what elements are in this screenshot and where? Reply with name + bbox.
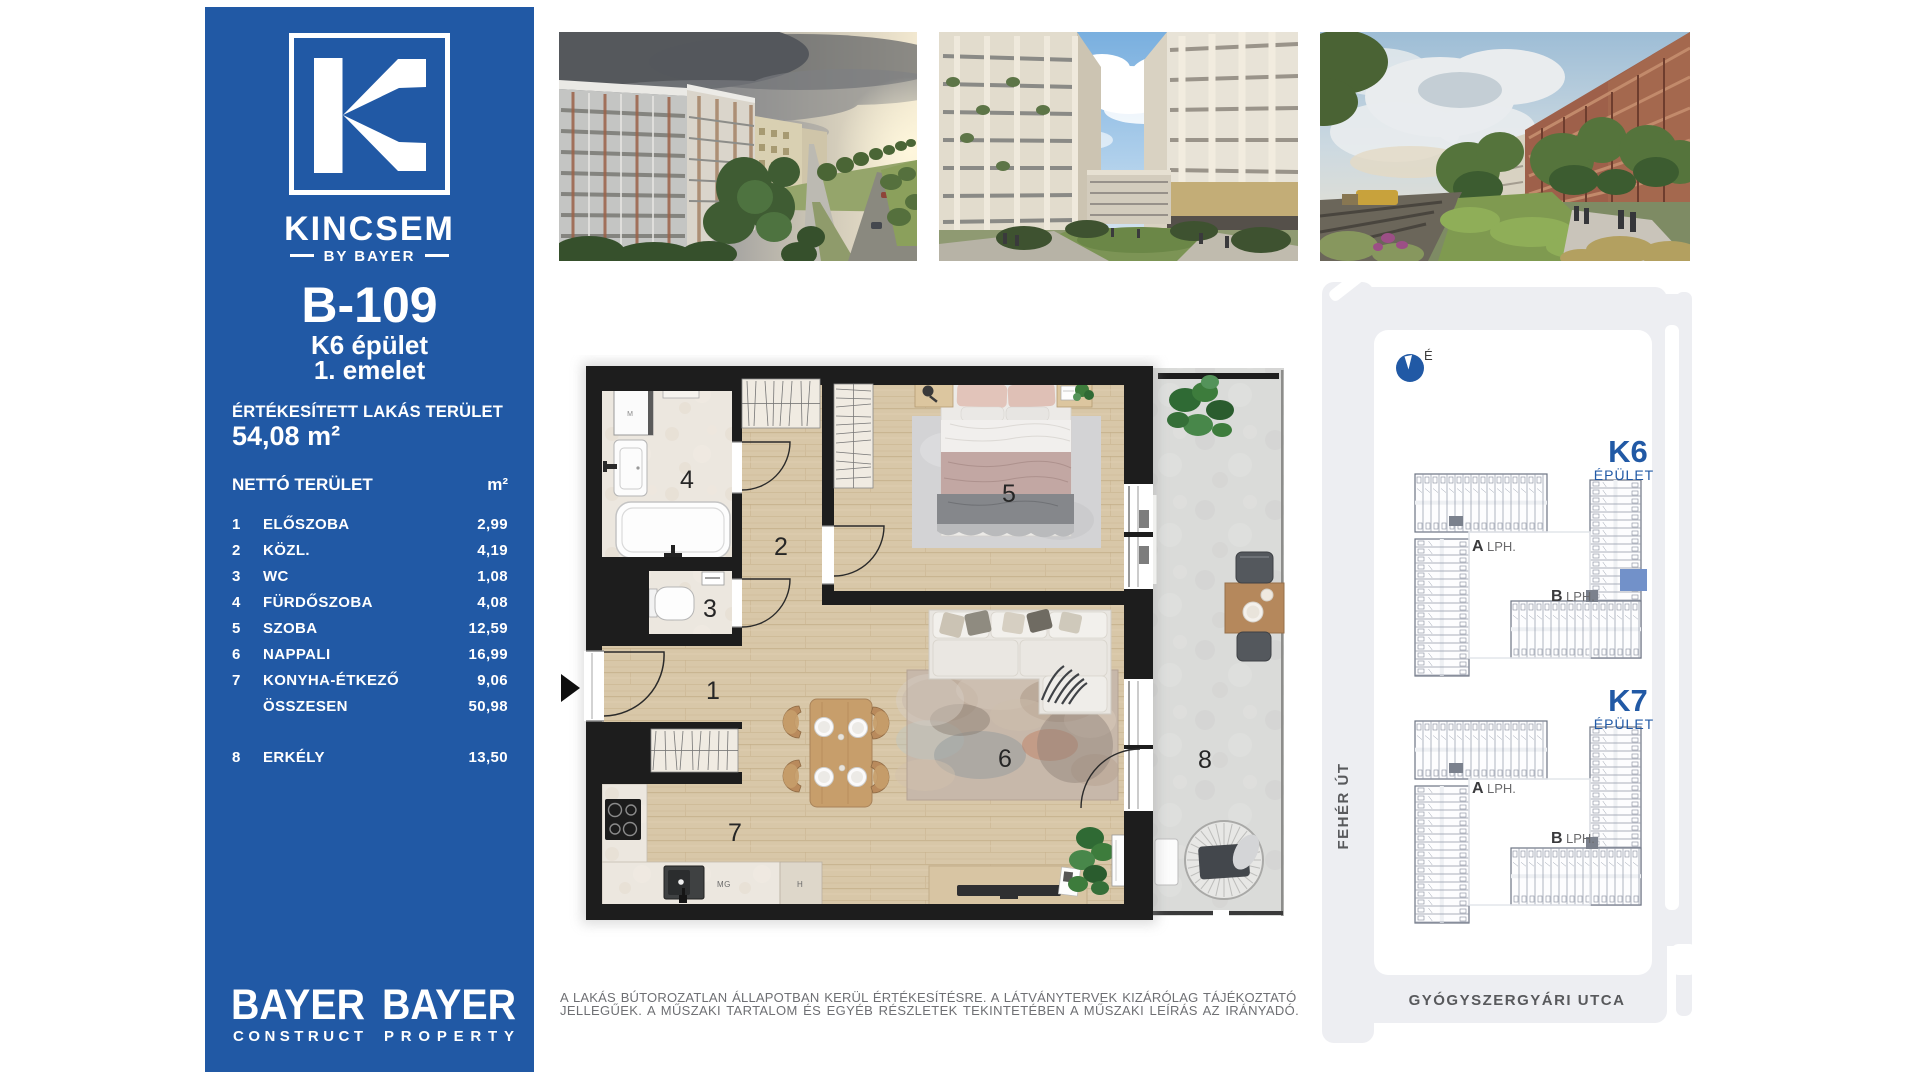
svg-text:K6: K6 xyxy=(1608,434,1648,469)
svg-text:LPH.: LPH. xyxy=(1566,589,1595,604)
svg-text:GYÓGYSZERGYÁRI UTCA: GYÓGYSZERGYÁRI UTCA xyxy=(1409,991,1626,1009)
svg-text:BAYER: BAYER xyxy=(231,982,365,1028)
svg-text:1: 1 xyxy=(706,677,720,705)
svg-text:É: É xyxy=(1424,348,1433,363)
svg-text:ÉPÜLET: ÉPÜLET xyxy=(1594,466,1654,483)
svg-text:LPH.: LPH. xyxy=(1487,781,1516,796)
svg-text:FEHÉR ÚT: FEHÉR ÚT xyxy=(1334,763,1352,850)
svg-text:MG: MG xyxy=(717,880,731,889)
svg-text:M: M xyxy=(627,411,633,418)
svg-text:PROPERTY: PROPERTY xyxy=(384,1028,514,1044)
svg-text:2: 2 xyxy=(774,533,788,561)
svg-text:4: 4 xyxy=(680,466,694,494)
svg-text:CONSTRUCT: CONSTRUCT xyxy=(233,1028,363,1044)
svg-text:3: 3 xyxy=(703,595,717,623)
svg-text:7: 7 xyxy=(728,819,742,847)
svg-text:A: A xyxy=(1472,538,1484,555)
svg-text:B: B xyxy=(1551,588,1563,605)
svg-text:LPH.: LPH. xyxy=(1487,539,1516,554)
svg-text:K7: K7 xyxy=(1608,683,1648,718)
svg-text:B: B xyxy=(1551,830,1563,847)
svg-text:ÉPÜLET: ÉPÜLET xyxy=(1594,715,1654,732)
svg-text:LPH.: LPH. xyxy=(1566,831,1595,846)
svg-text:A: A xyxy=(1472,780,1484,797)
svg-text:BAYER: BAYER xyxy=(382,982,516,1028)
svg-text:5: 5 xyxy=(1002,480,1016,508)
svg-text:8: 8 xyxy=(1198,746,1212,774)
svg-text:H: H xyxy=(797,880,803,889)
svg-text:6: 6 xyxy=(998,745,1012,773)
